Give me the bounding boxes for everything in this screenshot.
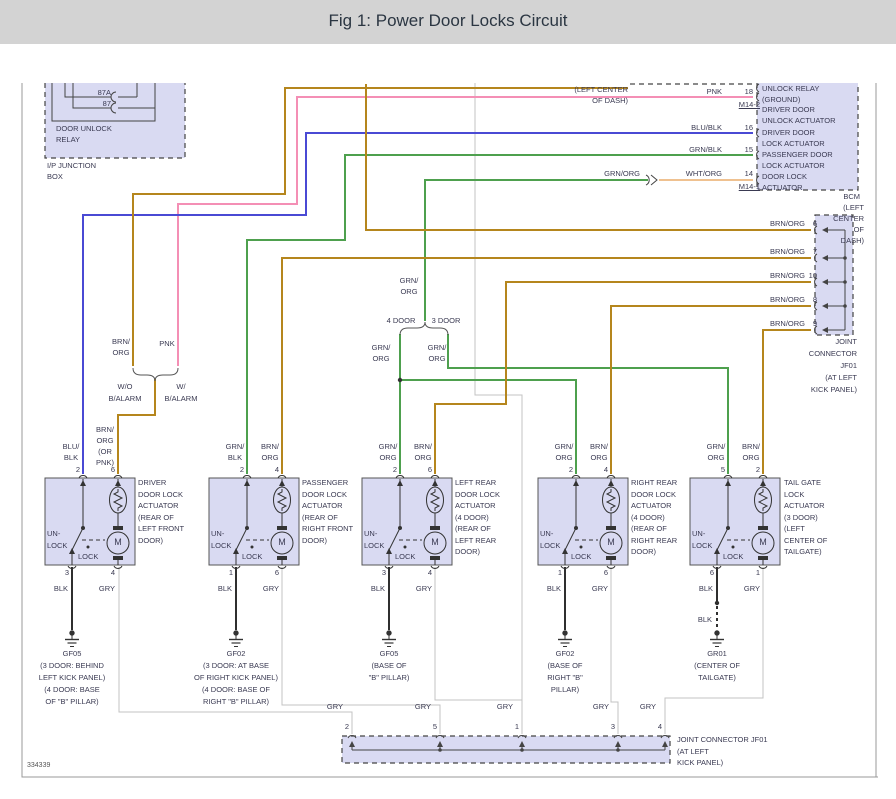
jf01r-pin-wire: BRN/ORG [770, 294, 805, 305]
jf01-bottom-label: JOINT CONNECTOR JF01 (AT LEFT KICK PANEL… [677, 734, 768, 769]
jf01r-pin-num: 8 [813, 294, 817, 305]
wire-pnk [178, 97, 753, 366]
pin-num: 1 [756, 567, 760, 578]
actuator-name: DRIVER DOOR LOCK ACTUATOR (REAR OF LEFT … [138, 477, 184, 546]
wire-label: BLK [371, 583, 385, 594]
motor-m: M [278, 537, 286, 548]
jf01r-pin-num: 9 [813, 318, 817, 329]
pin-num: 4 [275, 464, 279, 475]
pin-num: 1 [558, 567, 562, 578]
pin-num: 3 [65, 567, 69, 578]
jf01r-pin-wire: BRN/ORG [770, 318, 805, 329]
wires-grn [247, 155, 753, 474]
bcm-pin-16-num: 16 [745, 122, 753, 133]
actuator-name: TAIL GATE LOCK ACTUATOR (3 DOOR) (LEFT C… [784, 477, 827, 558]
lock-label: LOCK [571, 551, 591, 562]
split-4door-tag: 4 DOOR [387, 315, 416, 326]
bcm-pin-14-num: 14 [745, 168, 753, 179]
jf01r-pin-num: 7 [813, 246, 817, 257]
split-left-wire: GRN/ ORG [372, 342, 391, 364]
split-3door-tag: 3 DOOR [432, 315, 461, 326]
wire-label: BRN/ ORG [414, 441, 432, 463]
wire-label: GRN/ ORG [707, 441, 726, 463]
junction-dot [398, 378, 402, 382]
actuator-name: RIGHT REAR DOOR LOCK ACTUATOR (4 DOOR) (… [631, 477, 677, 558]
wire-label: GRY [327, 701, 343, 712]
unlock-label: UN- LOCK [47, 528, 67, 552]
pin-num: 6 [710, 567, 714, 578]
wire-label: BLK [54, 583, 68, 594]
unlock-label: UN- LOCK [364, 528, 384, 552]
bcm-pin-14-label: DOOR LOCK ACTUATOR [762, 171, 807, 193]
wire-label: GRY [99, 583, 115, 594]
pin-num: 5 [721, 464, 725, 475]
relay-pin-87a: 87A [98, 87, 111, 98]
wire-label: GRY [263, 583, 279, 594]
pin-num: 2 [569, 464, 573, 475]
alarm-left-tag: W/O B/ALARM [109, 381, 142, 405]
wire-label: BRN/ ORG [742, 441, 760, 463]
bcm-pin-15-num: 15 [745, 144, 753, 155]
upper-module-location: (LEFT CENTER OF DASH) [574, 84, 628, 106]
wire-label: BLK [698, 614, 712, 625]
jf01-right-label: JOINT CONNECTOR JF01 (AT LEFT KICK PANEL… [809, 336, 857, 396]
lock-label: LOCK [78, 551, 98, 562]
unlock-label: UN- LOCK [540, 528, 560, 552]
wire-label: BLK [699, 583, 713, 594]
jf01r-pin-wire: BRN/ORG [770, 270, 805, 281]
alarm-left-wire: BRN/ ORG [112, 336, 130, 358]
pin-num: 2 [240, 464, 244, 475]
split-right-wire: GRN/ ORG [428, 342, 447, 364]
pin-num: 4 [658, 721, 662, 732]
lock-label: LOCK [242, 551, 262, 562]
split-wire-label: GRN/ ORG [400, 275, 419, 297]
unlock-label: UN- LOCK [211, 528, 231, 552]
pin-num: 4 [428, 567, 432, 578]
pin-num: 2 [76, 464, 80, 475]
motor-m: M [759, 537, 767, 548]
ground-location: (3 DOOR: BEHIND LEFT KICK PANEL) (4 DOOR… [39, 660, 105, 708]
wire-label: GRN/ BLK [226, 441, 245, 463]
wiring-diagram-page: Fig 1: Power Door Locks Circuit [0, 0, 896, 799]
pin-num: 2 [756, 464, 760, 475]
wire-label: GRN/ ORG [555, 441, 574, 463]
bcm-pin-18-num: 18 [745, 86, 753, 97]
wire-label: GRY [593, 701, 609, 712]
wire-label: GRY [416, 583, 432, 594]
diagram-number: 334339 [27, 760, 50, 771]
pin-num: 6 [111, 464, 115, 475]
connector-m14-2: M14-2 [739, 99, 760, 110]
ground-location: (CENTER OF TAILGATE) [694, 660, 740, 684]
bcm-pin-ground-label: UNLOCK RELAY (GROUND) [762, 83, 819, 105]
ground-location: (BASE OF RIGHT "B" PILLAR) [547, 660, 583, 696]
pin-num: 1 [515, 721, 519, 732]
ground-id: GF05 [63, 648, 82, 659]
jf01r-pin-num: 6 [813, 218, 817, 229]
pin-num: 2 [393, 464, 397, 475]
lock-label: LOCK [395, 551, 415, 562]
bcm-name: BCM [843, 191, 860, 202]
alarm-right-tag: W/ B/ALARM [165, 381, 198, 405]
ground-location: (3 DOOR: AT BASE OF RIGHT KICK PANEL) (4… [194, 660, 278, 708]
alarm-right-wire: PNK [159, 338, 174, 349]
bcm-location: (LEFT CENTER OF DASH) [832, 202, 864, 246]
ground-id: GR01 [707, 648, 727, 659]
pin-num: 4 [604, 464, 608, 475]
wire-color-pnk: PNK [707, 86, 722, 97]
actuator-name: LEFT REAR DOOR LOCK ACTUATOR (4 DOOR) (R… [455, 477, 500, 558]
motor-m: M [431, 537, 439, 548]
motor-m: M [114, 537, 122, 548]
wire-label: GRY [592, 583, 608, 594]
pin-num: 6 [604, 567, 608, 578]
pin-num: 1 [229, 567, 233, 578]
pin-num: 5 [433, 721, 437, 732]
motor-m: M [607, 537, 615, 548]
wire-label: GRY [640, 701, 656, 712]
bcm-pin-18-label: DRIVER DOOR UNLOCK ACTUATOR [762, 104, 835, 126]
wire-color-wht-org: WHT/ORG [686, 168, 722, 179]
wire-label: BLK [218, 583, 232, 594]
jf01r-pin-wire: BRN/ORG [770, 246, 805, 257]
wire-label: GRY [497, 701, 513, 712]
jf01r-pin-wire: BRN/ORG [770, 218, 805, 229]
bcm-pin-15-label: PASSENGER DOOR LOCK ACTUATOR [762, 149, 833, 171]
junction-dot [715, 601, 719, 605]
alarm-merged-wire: BRN/ ORG (OR PNK) [96, 424, 114, 468]
connector-m14-1: M14-1 [739, 181, 760, 192]
unlock-label: UN- LOCK [692, 528, 712, 552]
wire-color-blu-blk: BLU/BLK [691, 122, 722, 133]
wire-label: BLK [547, 583, 561, 594]
wire-label: BLU/ BLK [63, 441, 80, 463]
wire-label: GRY [415, 701, 431, 712]
wire-label: GRY [744, 583, 760, 594]
wire-label: BRN/ ORG [261, 441, 279, 463]
ground-symbols [65, 631, 724, 647]
wires-blk [72, 567, 717, 630]
pin-num: 4 [111, 567, 115, 578]
ip-junction-box-label: I/P JUNCTION BOX [47, 160, 96, 182]
ground-id: GF02 [227, 648, 246, 659]
wire-label: GRN/ ORG [379, 441, 398, 463]
pin-num: 6 [428, 464, 432, 475]
ground-id: GF05 [380, 648, 399, 659]
lock-label: LOCK [723, 551, 743, 562]
wire-color-grn-blk: GRN/BLK [689, 144, 722, 155]
relay-pin-87: 87 [103, 98, 111, 109]
door-unlock-relay-label: DOOR UNLOCK RELAY [56, 123, 112, 145]
wires-brn-org [118, 84, 811, 474]
ground-location: (BASE OF "B" PILLAR) [369, 660, 410, 684]
bcm-pin-16-label: DRIVER DOOR LOCK ACTUATOR [762, 127, 825, 149]
pin-num: 3 [611, 721, 615, 732]
jf01r-pin-num: 10 [809, 270, 817, 281]
ground-id: GF02 [556, 648, 575, 659]
wire-color-grn-org: GRN/ORG [604, 168, 640, 179]
wire-label: BRN/ ORG [590, 441, 608, 463]
pin-num: 3 [382, 567, 386, 578]
actuator-name: PASSENGER DOOR LOCK ACTUATOR (REAR OF RI… [302, 477, 353, 546]
pin-num: 2 [345, 721, 349, 732]
pin-num: 6 [275, 567, 279, 578]
